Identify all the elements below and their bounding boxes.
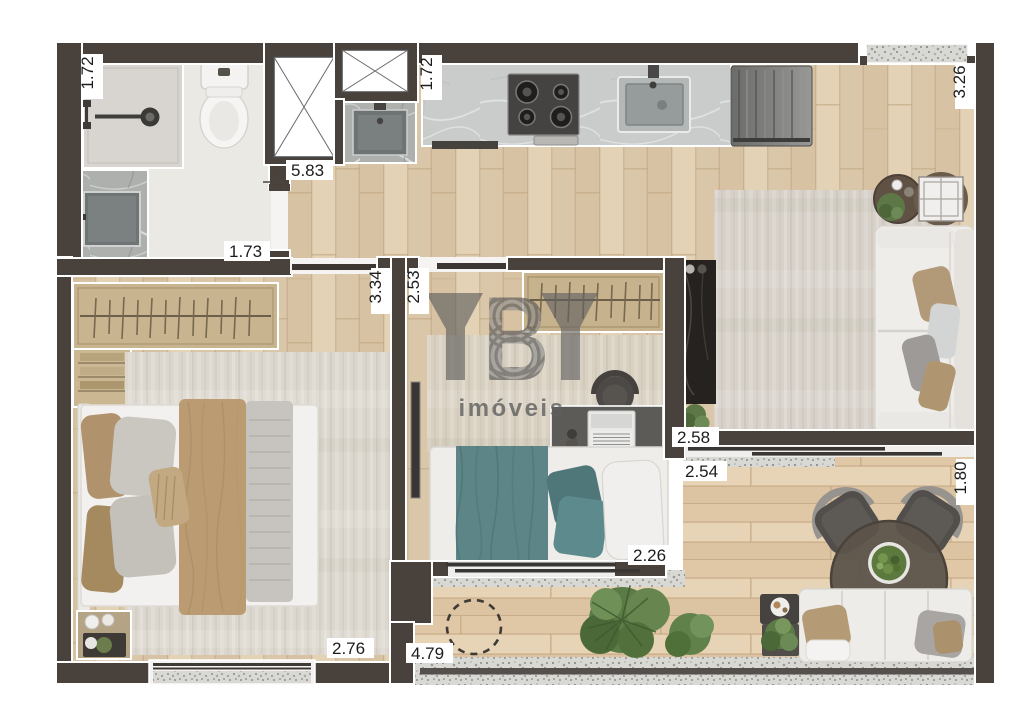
- svg-text:3.34: 3.34: [366, 270, 385, 303]
- svg-text:1.72: 1.72: [417, 57, 436, 90]
- svg-text:1.73: 1.73: [229, 242, 262, 261]
- svg-text:2.53: 2.53: [404, 270, 423, 303]
- svg-text:2.76: 2.76: [332, 639, 365, 658]
- svg-text:1.80: 1.80: [951, 461, 970, 494]
- svg-text:4.79: 4.79: [411, 644, 444, 663]
- svg-text:1.72: 1.72: [78, 56, 97, 89]
- svg-text:3.26: 3.26: [950, 65, 969, 98]
- svg-text:imóveis: imóveis: [459, 395, 566, 422]
- svg-text:2.58: 2.58: [677, 428, 710, 447]
- svg-text:2.54: 2.54: [685, 462, 718, 481]
- svg-text:2.26: 2.26: [633, 546, 666, 565]
- svg-text:5.83: 5.83: [291, 161, 324, 180]
